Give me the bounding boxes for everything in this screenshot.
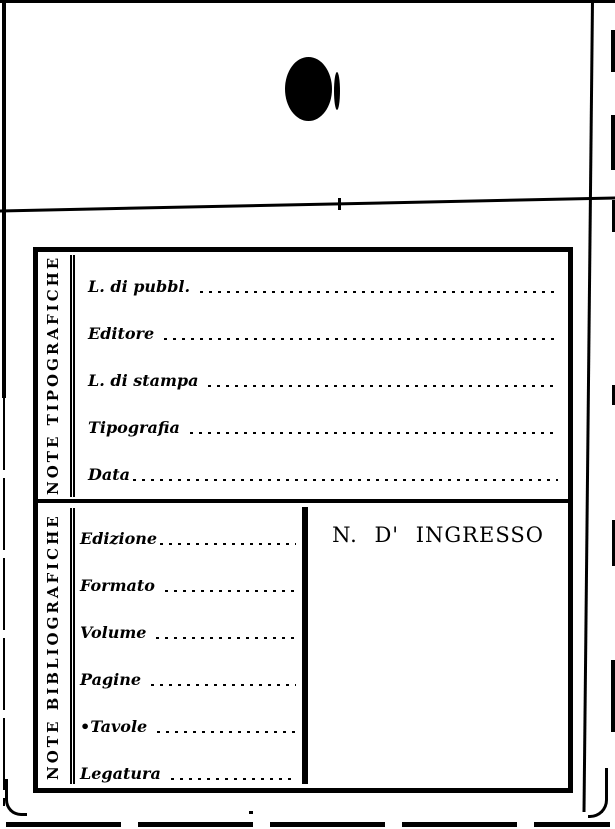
- punch-hole-sliver: [334, 72, 340, 110]
- scan-right-edge-mark: [611, 30, 615, 72]
- field-row-tipografia: Tipografia: [88, 414, 558, 438]
- field-row-data: Data: [88, 461, 558, 485]
- scan-right-edge-mark: [611, 660, 615, 732]
- section-divider-line: [33, 499, 573, 503]
- field-label: Pagine: [80, 672, 141, 690]
- dotted-blank-line: [190, 432, 558, 434]
- vertical-divider-line: [302, 507, 308, 784]
- dotted-blank-line: [133, 479, 558, 481]
- dotted-blank-line: [164, 338, 558, 340]
- library-catalog-card-scan: NOTE TIPOGRAFICHE L. di pubbl. Editore L…: [0, 0, 615, 829]
- punch-hole-icon: [285, 57, 332, 121]
- field-label: L. di stampa: [88, 373, 198, 391]
- card-bottom-right-corner: [588, 768, 608, 818]
- side-label-note-bibliografiche: NOTE BIBLIOGRAFICHE: [37, 508, 69, 786]
- dotted-blank-line: [157, 731, 296, 733]
- field-label: Editore: [88, 326, 154, 344]
- field-row-l-di-stampa: L. di stampa: [88, 367, 558, 391]
- dotted-blank-line: [160, 543, 296, 545]
- field-row-pagine: Pagine: [80, 666, 296, 690]
- dotted-blank-line: [156, 637, 296, 639]
- dotted-blank-line: [208, 385, 558, 387]
- scan-top-edge-line: [0, 0, 615, 3]
- dotted-blank-line: [171, 778, 296, 780]
- field-label: Formato: [80, 578, 155, 596]
- field-row-tavole: •Tavole: [80, 713, 296, 737]
- dotted-blank-line: [151, 684, 296, 686]
- ingresso-panel-title: N. D' INGRESSO: [312, 523, 564, 547]
- card-top-edge-tick: [338, 198, 341, 210]
- field-row-editore: Editore: [88, 320, 558, 344]
- double-rule-upper: [70, 255, 75, 497]
- dotted-blank-line: [165, 590, 296, 592]
- card-top-edge-line: [0, 196, 615, 212]
- scan-speck: [249, 811, 253, 814]
- field-label: L. di pubbl.: [88, 279, 190, 297]
- double-rule-lower: [70, 508, 75, 784]
- field-label: Legatura: [80, 766, 161, 784]
- field-row-edizione: Edizione: [80, 525, 296, 549]
- field-label: Edizione: [80, 531, 157, 549]
- field-label: Data: [88, 467, 130, 485]
- field-label: Volume: [80, 625, 146, 643]
- scan-left-edge-line: [2, 0, 6, 398]
- field-label: Tipografia: [88, 420, 180, 438]
- side-label-note-tipografiche: NOTE TIPOGRAFICHE: [37, 253, 69, 497]
- card-right-edge-line: [582, 0, 594, 812]
- card-bottom-left-corner: [5, 779, 27, 816]
- field-row-l-di-pubbl: L. di pubbl.: [88, 273, 558, 297]
- field-row-formato: Formato: [80, 572, 296, 596]
- field-row-volume: Volume: [80, 619, 296, 643]
- scan-left-edge-line-lower: [3, 398, 5, 806]
- scan-right-edge-mark: [611, 115, 615, 170]
- scan-bottom-edge-band: [6, 822, 610, 827]
- dotted-blank-line: [200, 291, 558, 293]
- field-label: •Tavole: [80, 719, 147, 737]
- field-row-legatura: Legatura: [80, 760, 296, 784]
